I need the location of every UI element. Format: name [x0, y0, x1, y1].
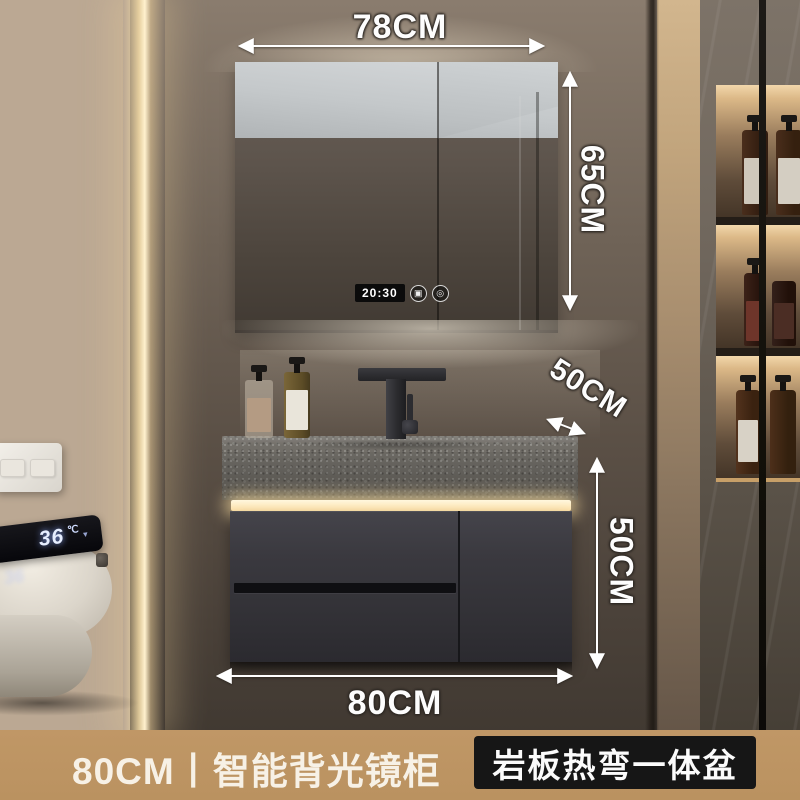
dimension-label-cabinet-height: 50CM	[603, 507, 640, 617]
banner-highlight-box: 岩板热弯一体盆	[474, 736, 756, 789]
dimension-arrows	[0, 0, 800, 800]
banner-right-text: 岩板热弯一体盆	[493, 739, 738, 787]
product-title-banner: 80CM丨智能背光镜柜 岩板热弯一体盆	[0, 730, 800, 800]
dimension-label-mirror-width: 78CM	[325, 8, 475, 47]
product-photo-scene: 20:30 ▣ ◎ 36 36 ℃	[0, 0, 800, 800]
arrow-counter-depth	[549, 420, 583, 433]
banner-left-text: 80CM丨智能背光镜柜	[72, 741, 441, 795]
dimension-label-cabinet-width: 80CM	[320, 684, 470, 723]
dimension-label-mirror-height: 65CM	[574, 135, 611, 245]
